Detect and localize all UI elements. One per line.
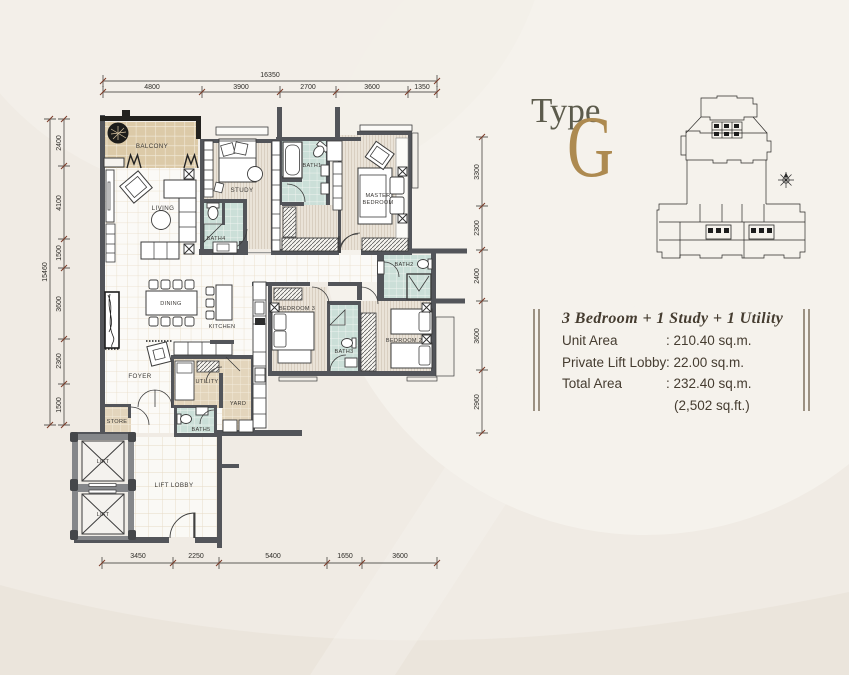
- svg-text:2250: 2250: [188, 553, 204, 560]
- svg-text:2400: 2400: [56, 135, 63, 151]
- svg-text:4800: 4800: [144, 84, 160, 91]
- svg-text:1650: 1650: [337, 553, 353, 560]
- svg-text:KITCHEN: KITCHEN: [209, 324, 236, 330]
- svg-text:BATH5: BATH5: [191, 427, 210, 433]
- svg-text:LIFT: LIFT: [97, 459, 110, 465]
- svg-text:3 Bedroom + 1 Study + 1 Utilit: 3 Bedroom + 1 Study + 1 Utility: [561, 310, 784, 327]
- svg-text:2300: 2300: [474, 220, 481, 236]
- svg-text:3600: 3600: [392, 553, 408, 560]
- svg-text:3450: 3450: [130, 553, 146, 560]
- svg-text:1500: 1500: [56, 245, 63, 261]
- svg-text:LIFT: LIFT: [97, 512, 110, 518]
- svg-text:: 210.40 sq.m.: : 210.40 sq.m.: [666, 333, 752, 348]
- svg-text:FOYER: FOYER: [128, 373, 151, 380]
- svg-text:BEDROOM: BEDROOM: [362, 200, 393, 206]
- svg-text:Total Area: Total Area: [562, 376, 623, 391]
- svg-text:BATH4: BATH4: [206, 236, 225, 242]
- svg-text:: 232.40 sq.m.: : 232.40 sq.m.: [666, 376, 752, 391]
- svg-text:MASTER: MASTER: [365, 193, 390, 199]
- svg-text:BEDROOM 3: BEDROOM 3: [279, 306, 315, 312]
- svg-text:2360: 2360: [56, 353, 63, 369]
- svg-text:1350: 1350: [414, 84, 430, 91]
- svg-text:2700: 2700: [300, 84, 316, 91]
- svg-text:BATH3: BATH3: [334, 349, 353, 355]
- svg-text:Private Lift Lobby: Private Lift Lobby: [562, 355, 667, 370]
- svg-text:LIVING: LIVING: [152, 205, 175, 212]
- svg-text:BALCONY: BALCONY: [136, 143, 168, 150]
- svg-text:: 22.00 sq.m.: : 22.00 sq.m.: [666, 355, 744, 370]
- svg-text:5400: 5400: [265, 553, 281, 560]
- svg-text:BATH2: BATH2: [394, 262, 413, 268]
- svg-text:3600: 3600: [56, 296, 63, 312]
- svg-text:G: G: [567, 98, 614, 196]
- svg-text:LIFT LOBBY: LIFT LOBBY: [155, 482, 194, 489]
- svg-text:16350: 16350: [260, 72, 280, 79]
- svg-text:BEDROOM 2: BEDROOM 2: [386, 338, 422, 344]
- svg-text:4100: 4100: [56, 195, 63, 211]
- svg-text:15460: 15460: [42, 262, 49, 282]
- svg-text:Unit Area: Unit Area: [562, 333, 618, 348]
- svg-text:UTILITY: UTILITY: [196, 379, 219, 385]
- svg-text:STUDY: STUDY: [231, 187, 254, 194]
- svg-text:(2,502 sq.ft.): (2,502 sq.ft.): [674, 398, 750, 413]
- svg-text:3300: 3300: [474, 164, 481, 180]
- svg-text:STORE: STORE: [107, 419, 128, 425]
- svg-text:3900: 3900: [233, 84, 249, 91]
- svg-text:BATH1: BATH1: [302, 163, 321, 169]
- svg-text:1500: 1500: [56, 397, 63, 413]
- svg-text:3600: 3600: [474, 328, 481, 344]
- svg-text:3600: 3600: [364, 84, 380, 91]
- svg-text:DINING: DINING: [160, 301, 181, 307]
- svg-text:YARD: YARD: [230, 401, 246, 407]
- svg-text:2960: 2960: [474, 394, 481, 410]
- svg-text:2400: 2400: [474, 268, 481, 284]
